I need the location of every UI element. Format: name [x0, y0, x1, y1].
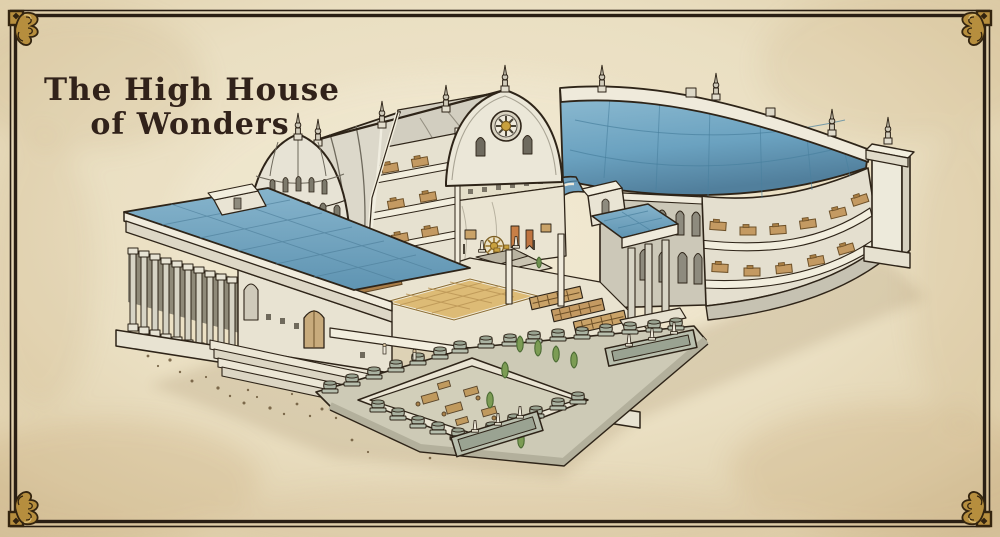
column	[139, 251, 149, 334]
cut-post	[506, 250, 512, 304]
roof-vent	[766, 108, 775, 116]
wall-picture	[465, 230, 476, 239]
column	[161, 258, 171, 341]
wall-arch-niche	[244, 284, 258, 320]
cut-post	[558, 234, 564, 306]
column	[172, 261, 182, 344]
column	[194, 267, 204, 350]
tower-door	[602, 199, 609, 214]
roof-vent	[686, 88, 696, 97]
west-door	[304, 310, 324, 348]
column	[128, 248, 138, 331]
map-illustration: The High House of Wonders	[0, 0, 1000, 537]
fantasy-map-canvas: The High House of Wonders	[0, 0, 1000, 537]
candle-post	[533, 240, 535, 250]
column	[183, 264, 193, 347]
rose-window	[491, 111, 521, 141]
wall-picture	[541, 224, 551, 232]
map-title-line1: The High House	[44, 72, 340, 108]
map-title-line2: of Wonders	[90, 107, 289, 142]
gable-lancet-window	[476, 138, 485, 157]
gable-lancet-window	[523, 136, 532, 155]
candle-post	[463, 244, 465, 254]
green-statue	[537, 257, 542, 268]
column	[150, 254, 160, 337]
